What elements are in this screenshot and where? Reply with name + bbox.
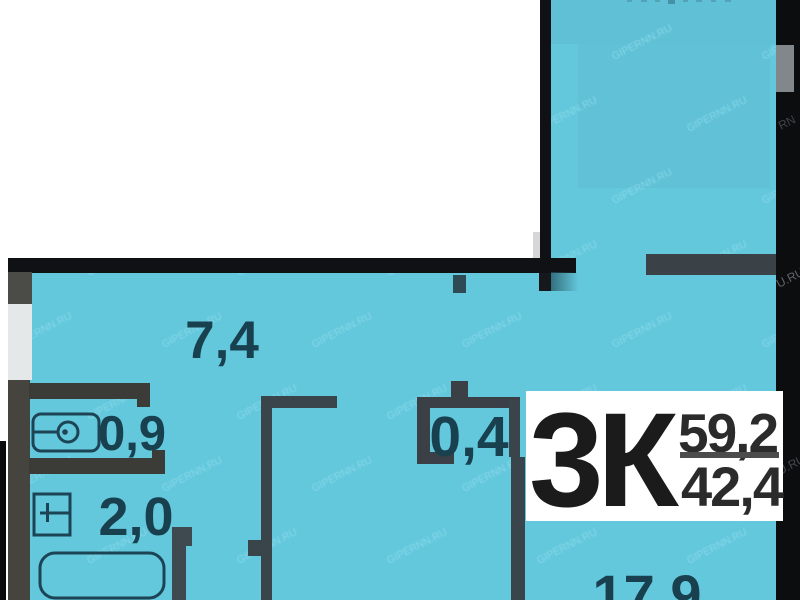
svg-text:42,4: 42,4	[681, 455, 784, 518]
svg-text:0,4: 0,4	[429, 405, 509, 469]
svg-text:2,0: 2,0	[98, 487, 173, 547]
svg-text:0,9: 0,9	[98, 407, 166, 461]
svg-text:3К: 3К	[529, 386, 679, 535]
svg-text:7,4: 7,4	[185, 311, 259, 370]
svg-text:17,9: 17,9	[593, 563, 702, 600]
